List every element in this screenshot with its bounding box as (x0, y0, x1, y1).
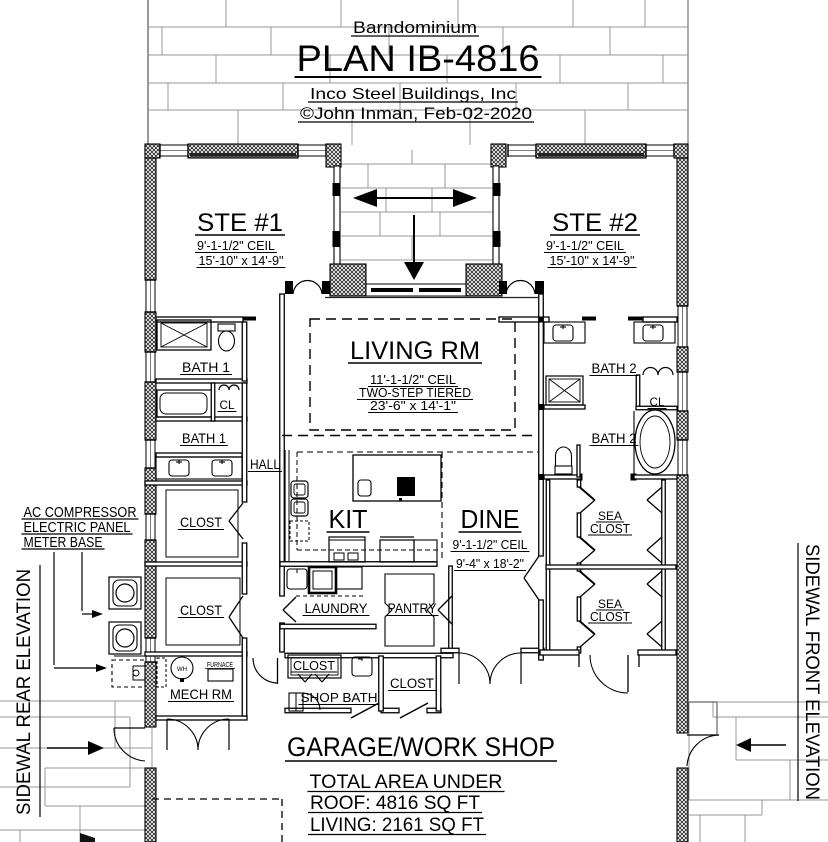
svg-text:BATH 2: BATH 2 (592, 360, 637, 376)
svg-text:CLOST: CLOST (590, 522, 630, 536)
svg-text:BATH 2: BATH 2 (592, 430, 637, 446)
svg-text:SEA: SEA (598, 597, 622, 611)
svg-text:9'-1-1/2" CEIL: 9'-1-1/2" CEIL (453, 538, 528, 552)
svg-text:TOTAL AREA UNDER: TOTAL AREA UNDER (310, 772, 503, 793)
svg-text:9'-4" x 18'-2": 9'-4" x 18'-2" (456, 557, 524, 571)
svg-text:Inco Steel Buildings, Inc: Inco Steel Buildings, Inc (310, 86, 516, 103)
svg-text:SIDEWAL REAR ELEVATION: SIDEWAL REAR ELEVATION (14, 569, 35, 815)
svg-text:FURNACE: FURNACE (207, 662, 233, 669)
svg-text:PANTRY: PANTRY (388, 600, 438, 616)
svg-text:CLOST: CLOST (293, 658, 335, 673)
svg-text:LIVING RM: LIVING RM (350, 337, 480, 365)
svg-text:SHOP BATH: SHOP BATH (301, 690, 378, 705)
svg-text:BATH 1: BATH 1 (182, 359, 230, 375)
svg-text:CLOST: CLOST (590, 610, 630, 624)
svg-text:MECH RM: MECH RM (170, 686, 232, 702)
svg-text:HALL: HALL (250, 457, 280, 472)
svg-text:SIDEWAL FRONT ELEVATION: SIDEWAL FRONT ELEVATION (801, 544, 822, 800)
svg-text:KIT: KIT (329, 504, 368, 534)
svg-text:LAUNDRY: LAUNDRY (305, 600, 369, 616)
svg-text:PLAN IB-4816: PLAN IB-4816 (297, 38, 540, 79)
svg-text:STE #1: STE #1 (197, 209, 283, 237)
svg-text:CLOST: CLOST (390, 676, 434, 691)
svg-text:CL: CL (220, 398, 235, 412)
svg-text:CL: CL (650, 395, 665, 409)
svg-text:TWO-STEP TIERED: TWO-STEP TIERED (359, 386, 471, 400)
svg-text:15'-10" x 14'-9": 15'-10" x 14'-9" (199, 254, 284, 268)
svg-text:ROOF: 4816 SQ FT: ROOF: 4816 SQ FT (310, 793, 480, 814)
svg-text:STE #2: STE #2 (552, 209, 638, 237)
svg-text:23'-6" x 14'-1": 23'-6" x 14'-1" (370, 399, 456, 413)
svg-text:11'-1-1/2" CEIL: 11'-1-1/2" CEIL (370, 373, 456, 387)
svg-text:SEA: SEA (598, 509, 622, 523)
svg-text:WH: WH (177, 667, 187, 673)
svg-text:CLOST: CLOST (180, 602, 222, 618)
svg-text:BATH 1: BATH 1 (182, 430, 226, 446)
svg-text:9'-1-1/2" CEIL: 9'-1-1/2" CEIL (197, 239, 275, 253)
svg-text:9'-1-1/2" CEIL: 9'-1-1/2" CEIL (546, 239, 624, 253)
svg-text:DINE: DINE (461, 504, 520, 534)
svg-text:LIVING: 2161 SQ FT: LIVING: 2161 SQ FT (310, 815, 484, 836)
svg-text:©John Inman, Feb-02-2020: ©John Inman, Feb-02-2020 (300, 104, 532, 123)
svg-text:Barndominium: Barndominium (353, 18, 477, 37)
svg-text:GARAGE/WORK SHOP: GARAGE/WORK SHOP (287, 732, 555, 762)
svg-text:CLOST: CLOST (180, 514, 222, 530)
svg-text:15'-10" x 14'-9": 15'-10" x 14'-9" (550, 254, 635, 268)
